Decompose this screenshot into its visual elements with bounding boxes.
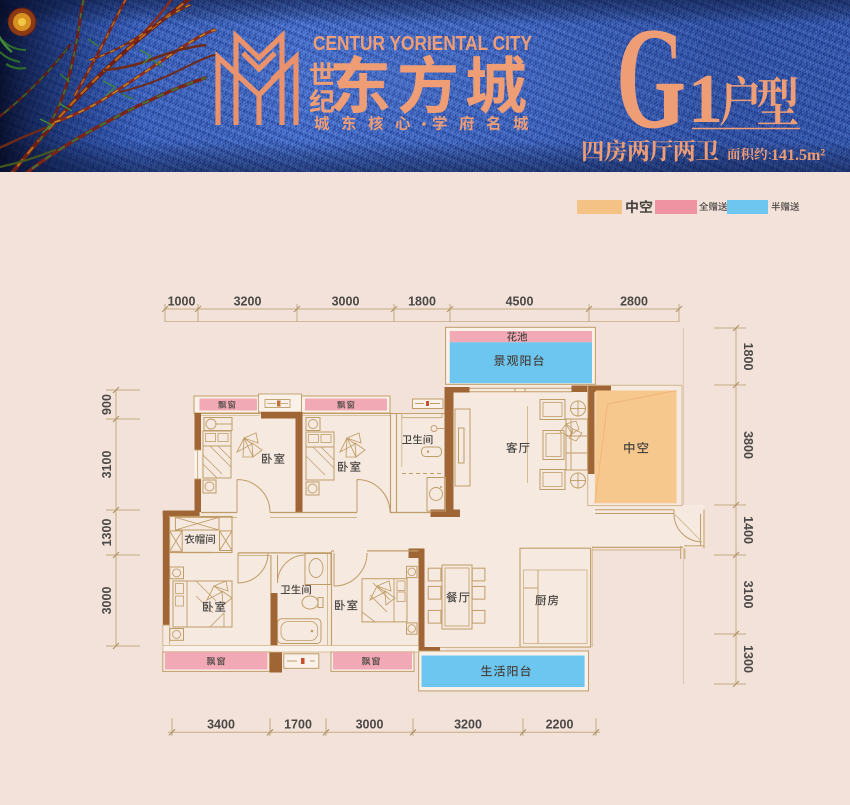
svg-text:900: 900 [100,394,114,415]
svg-text:2800: 2800 [620,295,648,309]
svg-text:1800: 1800 [408,295,436,309]
svg-text:1800: 1800 [741,343,755,371]
svg-text:4500: 4500 [506,295,534,309]
svg-text:2200: 2200 [546,718,574,732]
svg-text:3400: 3400 [207,718,235,732]
svg-text:3000: 3000 [356,718,384,732]
svg-text:141.5m²: 141.5m² [771,147,825,164]
svg-text:1000: 1000 [168,295,196,309]
svg-text:1400: 1400 [741,516,755,544]
svg-text:3000: 3000 [332,295,360,309]
svg-text:3100: 3100 [100,451,114,479]
svg-text:CENTUR YORIENTAL CITY: CENTUR YORIENTAL CITY [313,33,533,55]
svg-text:1300: 1300 [100,519,114,547]
svg-text:3000: 3000 [100,587,114,615]
svg-text:3200: 3200 [234,295,262,309]
svg-text:1300: 1300 [741,645,755,673]
svg-text:3200: 3200 [454,718,482,732]
svg-text:1: 1 [688,61,723,138]
svg-text:3100: 3100 [741,581,755,609]
svg-text:G: G [616,0,686,159]
svg-text:3800: 3800 [741,431,755,459]
svg-text:1700: 1700 [284,718,312,732]
